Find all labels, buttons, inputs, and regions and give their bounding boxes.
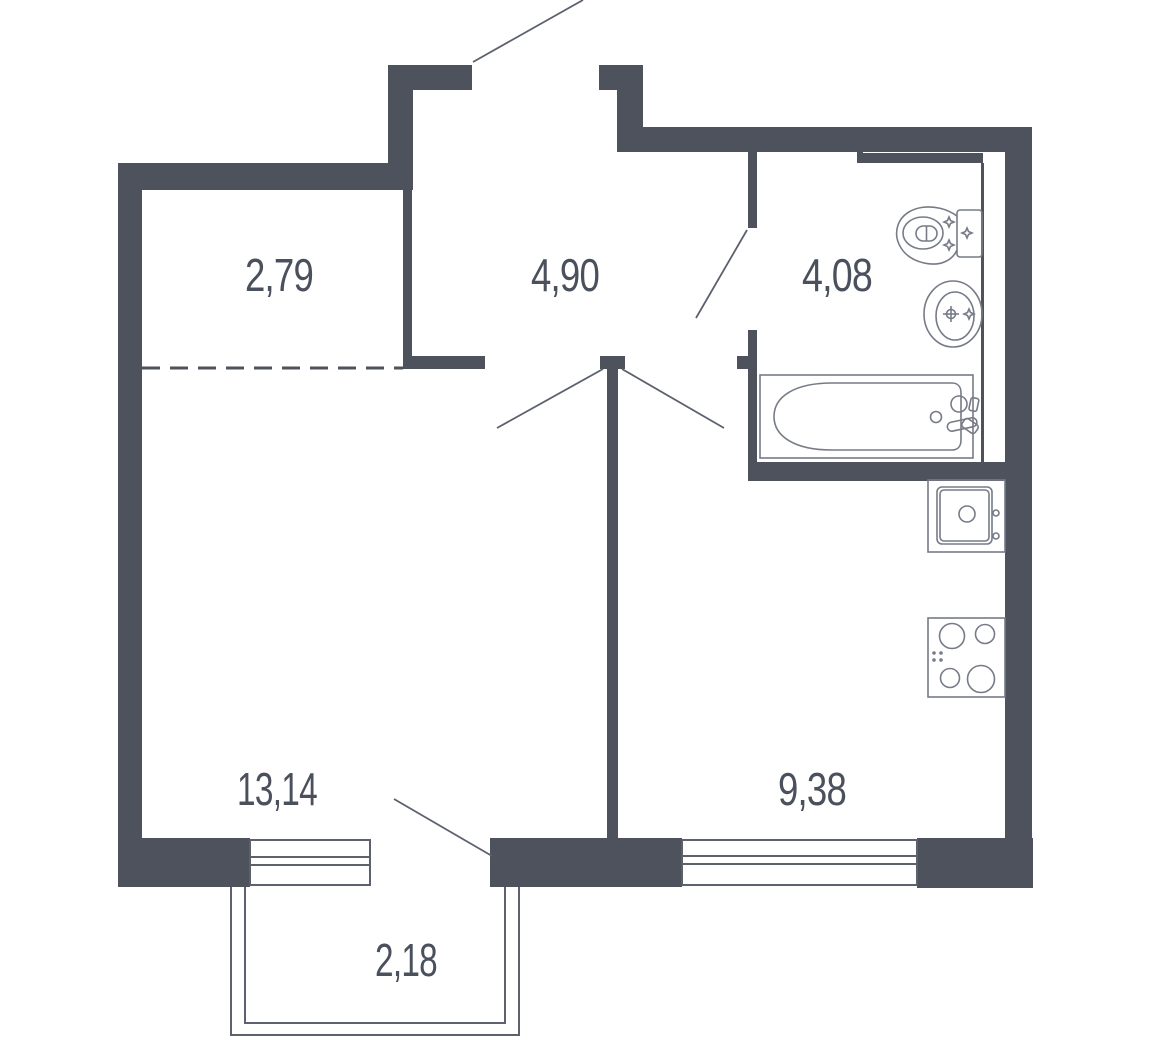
wall-bathroom-left-lower [748,330,757,481]
wall-bathroom-left-stub [737,356,749,369]
wall-closet-top [118,163,412,190]
wall-central-cap [600,356,625,369]
wall-bathroom-bottom [748,462,1007,481]
wall-top-exterior [617,127,1032,152]
stove-knob-dot [932,658,936,662]
room-label-hallway: 4,90 [531,249,599,301]
wall-right-exterior [1005,127,1032,888]
wall-entry-left-top [388,65,472,90]
stove-knob-dot [932,651,936,655]
wall-entry-right-top [599,65,643,90]
floor-plan-page: 2,79 4,90 4,08 13,14 9,38 2,18 [0,0,1150,1040]
stove-knob-dot [939,658,943,662]
wall-bottom-right [917,838,1033,888]
room-label-living-room: 13,14 [237,763,317,815]
room-label-kitchen: 9,38 [778,763,846,815]
room-label-balcony: 2,18 [375,934,437,986]
stove-knob-dot [939,651,943,655]
wall-left-exterior [118,163,142,887]
floor-plan-svg: 2,79 4,90 4,08 13,14 9,38 2,18 [0,0,1150,1040]
wall-closet-stub [403,356,485,369]
room-label-bathroom: 4,08 [802,249,872,301]
wall-entry-right-vertical [617,90,643,130]
room-label-closet: 2,79 [245,249,313,301]
wall-central-partition [607,369,618,838]
wall-closet-right [403,190,412,369]
wall-bottom-left [118,838,250,887]
wall-bottom-middle [490,838,682,887]
wall-bathroom-left-upper [748,152,757,228]
wall-shaft-band [857,153,983,163]
